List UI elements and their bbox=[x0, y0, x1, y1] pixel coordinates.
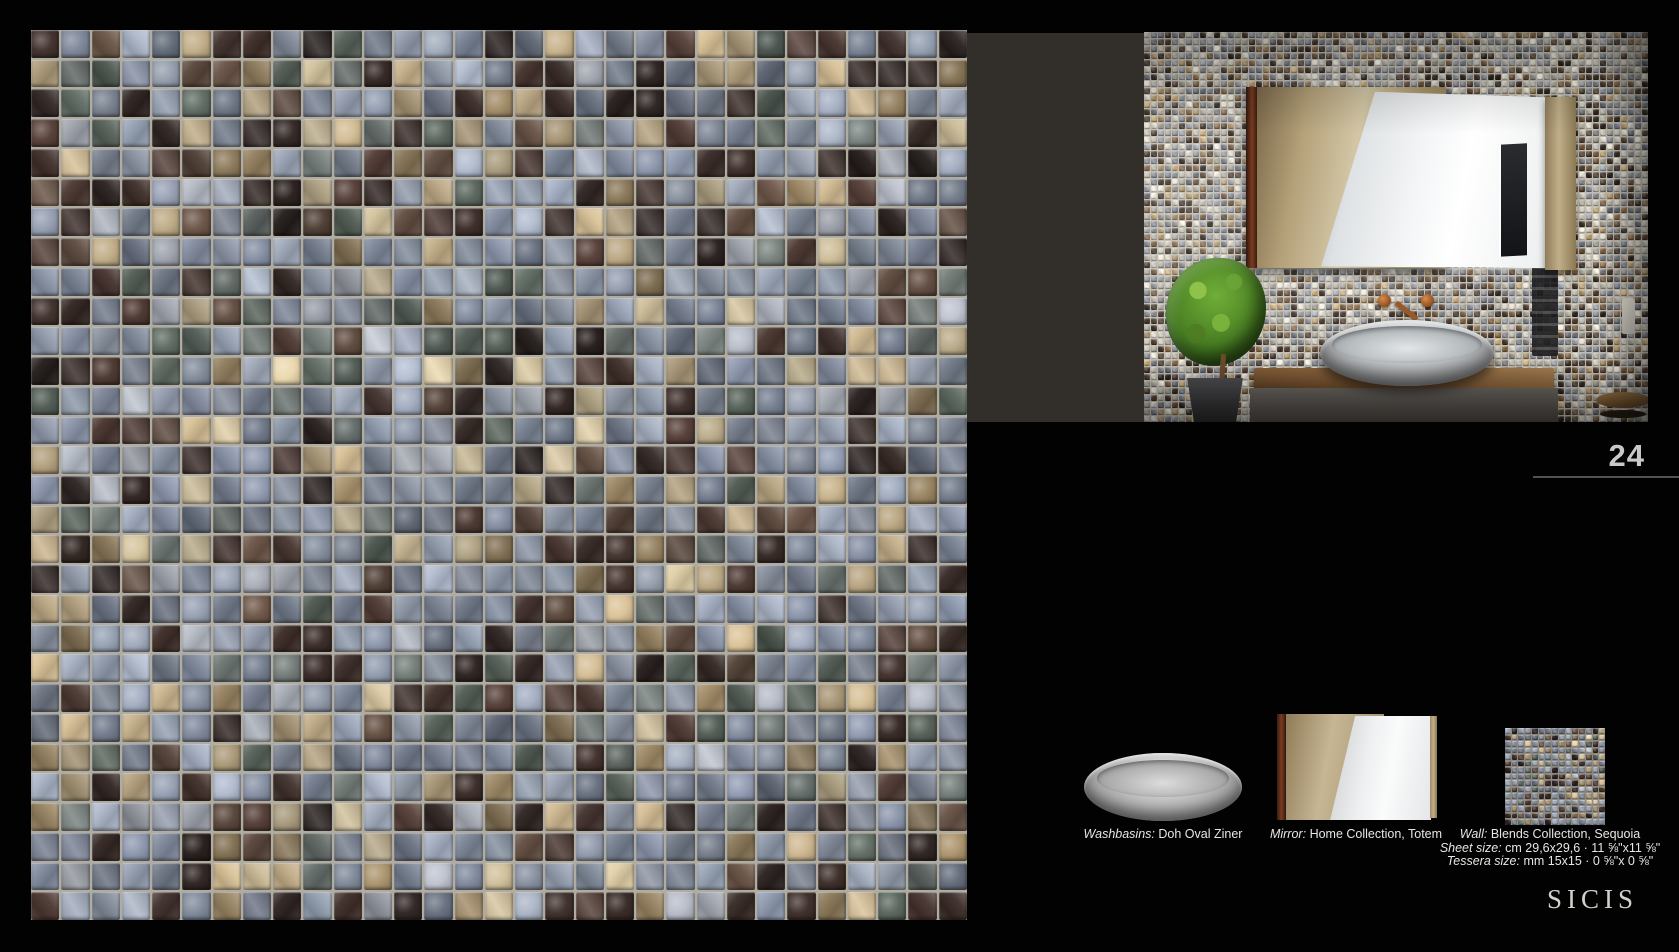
mosaic-tile bbox=[1467, 283, 1473, 289]
mosaic-tile bbox=[1347, 297, 1353, 303]
mosaic-tile bbox=[1586, 416, 1592, 422]
mosaic-tile bbox=[92, 654, 120, 682]
mosaic-tile bbox=[424, 654, 452, 682]
mosaic-tile bbox=[1600, 207, 1606, 213]
mosaic-tile bbox=[1361, 81, 1367, 87]
mosaic-tile bbox=[727, 60, 755, 88]
mosaic-tile bbox=[787, 654, 815, 682]
mosaic-tile bbox=[1207, 193, 1213, 199]
mosaic-tile bbox=[1389, 46, 1395, 52]
mosaic-tile bbox=[1572, 325, 1578, 331]
mosaic-tile bbox=[1579, 339, 1585, 345]
mosaic-tile bbox=[848, 654, 876, 682]
mosaic-tile bbox=[1474, 81, 1480, 87]
mosaic-tile bbox=[92, 863, 120, 891]
mosaic-tile bbox=[1270, 67, 1276, 73]
mosaic-tile bbox=[1298, 318, 1304, 324]
mosaic-tile bbox=[1425, 81, 1431, 87]
mosaic-tile bbox=[303, 803, 331, 831]
mosaic-tile bbox=[1453, 67, 1459, 73]
mosaic-tile bbox=[606, 863, 634, 891]
mosaic-tile bbox=[152, 149, 180, 177]
mosaic-tile bbox=[1228, 234, 1234, 240]
mosaic-tile bbox=[1249, 360, 1255, 366]
mosaic-tile bbox=[1263, 346, 1269, 352]
mosaic-tile bbox=[1256, 67, 1262, 73]
mosaic-tile bbox=[1158, 255, 1164, 261]
mosaic-tile bbox=[334, 803, 362, 831]
mosaic-tile bbox=[1586, 262, 1592, 268]
mosaic-tile bbox=[1172, 200, 1178, 206]
mosaic-tile bbox=[1579, 221, 1585, 227]
mosaic-tile bbox=[1207, 109, 1213, 115]
mosaic-tile bbox=[1404, 276, 1410, 282]
mosaic-tile bbox=[1523, 332, 1529, 338]
mosaic-tile bbox=[1600, 32, 1606, 38]
mosaic-tile bbox=[1172, 88, 1178, 94]
mosaic-tile bbox=[1214, 172, 1220, 178]
mosaic-tile bbox=[1537, 67, 1543, 73]
mosaic-tile bbox=[1186, 248, 1192, 254]
mosaic-tile bbox=[1621, 39, 1627, 45]
mosaic-tile bbox=[92, 506, 120, 534]
mosaic-tile bbox=[1179, 416, 1185, 422]
mosaic-tile bbox=[1607, 339, 1613, 345]
mosaic-tile bbox=[213, 565, 241, 593]
mosaic-tile bbox=[1635, 130, 1641, 136]
mosaic-tile bbox=[727, 119, 755, 147]
mosaic-tile bbox=[1263, 67, 1269, 73]
mosaic-tile bbox=[636, 565, 664, 593]
mosaic-tile bbox=[1495, 60, 1501, 66]
mosaic-tile bbox=[1151, 276, 1157, 282]
mosaic-tile bbox=[1186, 60, 1192, 66]
mosaic-tile bbox=[1432, 283, 1438, 289]
mosaic-tile bbox=[939, 863, 967, 891]
mosaic-tile bbox=[1179, 116, 1185, 122]
mosaic-tile bbox=[1263, 325, 1269, 331]
mosaic-tile bbox=[1319, 276, 1325, 282]
mosaic-tile bbox=[1495, 39, 1501, 45]
mosaic-tile bbox=[364, 535, 392, 563]
mosaic-tile bbox=[1256, 353, 1262, 359]
mosaic-tile bbox=[1326, 276, 1332, 282]
mosaic-tile bbox=[1382, 53, 1388, 59]
mosaic-tile bbox=[1586, 381, 1592, 387]
mosaic-tile bbox=[727, 892, 755, 920]
mosaic-tile bbox=[878, 654, 906, 682]
mosaic-tile bbox=[1144, 318, 1150, 324]
mosaic-tile bbox=[1235, 95, 1241, 101]
mosaic-tile bbox=[606, 89, 634, 117]
mosaic-tile bbox=[31, 773, 59, 801]
mosaic-tile bbox=[636, 30, 664, 58]
mosaic-tile bbox=[1235, 144, 1241, 150]
mosaic-tile bbox=[213, 506, 241, 534]
mosaic-tile bbox=[787, 684, 815, 712]
mosaic-tile bbox=[213, 714, 241, 742]
mosaic-tile bbox=[1333, 297, 1339, 303]
mosaic-tile bbox=[273, 208, 301, 236]
mosaic-tile bbox=[1193, 241, 1199, 247]
mosaic-tile bbox=[1628, 374, 1634, 380]
mosaic-tile bbox=[666, 744, 694, 772]
mosaic-tile bbox=[273, 833, 301, 861]
mosaic-tile bbox=[727, 833, 755, 861]
mosaic-tile bbox=[1207, 67, 1213, 73]
mosaic-tile bbox=[1389, 60, 1395, 66]
mosaic-tile bbox=[787, 863, 815, 891]
mosaic-tile bbox=[213, 417, 241, 445]
mosaic-tile bbox=[636, 119, 664, 147]
mosaic-tile bbox=[1305, 81, 1311, 87]
mosaic-tile bbox=[878, 506, 906, 534]
mosaic-tile bbox=[1165, 388, 1171, 394]
mosaic-tile bbox=[1200, 123, 1206, 129]
mosaic-tile bbox=[1614, 193, 1620, 199]
mosaic-tile bbox=[1179, 228, 1185, 234]
mosaic-tile bbox=[1411, 67, 1417, 73]
mosaic-tile bbox=[636, 387, 664, 415]
mosaic-tile bbox=[1593, 409, 1599, 415]
mosaic-tile bbox=[1642, 116, 1648, 122]
mosaic-tile bbox=[1600, 39, 1606, 45]
mosaic-tile bbox=[1144, 32, 1150, 38]
mosaic-tile bbox=[1565, 416, 1571, 422]
mosaic-tile bbox=[1277, 32, 1283, 38]
mosaic-tile bbox=[1214, 241, 1220, 247]
mosaic-tile bbox=[1614, 297, 1620, 303]
mosaic-tile bbox=[1249, 39, 1255, 45]
mosaic-tile bbox=[848, 714, 876, 742]
mosaic-tile bbox=[1551, 67, 1557, 73]
mosaic-tile bbox=[1165, 409, 1171, 415]
mosaic-tile bbox=[1558, 395, 1564, 401]
mosaic-tile bbox=[122, 208, 150, 236]
mosaic-tile bbox=[455, 89, 483, 117]
mosaic-tile bbox=[334, 149, 362, 177]
mosaic-tile bbox=[1382, 276, 1388, 282]
mosaic-tile bbox=[1263, 269, 1269, 275]
mosaic-tile bbox=[1579, 325, 1585, 331]
mosaic-tile bbox=[1158, 283, 1164, 289]
mosaic-tile bbox=[1277, 332, 1283, 338]
mosaic-tile bbox=[1235, 158, 1241, 164]
mosaic-tile bbox=[727, 208, 755, 236]
mosaic-tile bbox=[1600, 151, 1606, 157]
mosaic-tile bbox=[1291, 325, 1297, 331]
mosaic-tile bbox=[1158, 388, 1164, 394]
mosaic-tile bbox=[1439, 276, 1445, 282]
mosaic-tile bbox=[1614, 172, 1620, 178]
mosaic-tile bbox=[1172, 102, 1178, 108]
mosaic-tile bbox=[1614, 137, 1620, 143]
mosaic-tile bbox=[485, 298, 513, 326]
mosaic-tile bbox=[1165, 193, 1171, 199]
mosaic-tile bbox=[1600, 186, 1606, 192]
mosaic-tile bbox=[1270, 304, 1276, 310]
mosaic-tile bbox=[1312, 346, 1318, 352]
mosaic-tile bbox=[1389, 67, 1395, 73]
mosaic-tile bbox=[1228, 200, 1234, 206]
mosaic-tile bbox=[424, 357, 452, 385]
mosaic-tile bbox=[1207, 151, 1213, 157]
mosaic-tile bbox=[1558, 367, 1564, 373]
mosaic-tile bbox=[364, 149, 392, 177]
mosaic-tile bbox=[1523, 325, 1529, 331]
mosaic-tile bbox=[1347, 39, 1353, 45]
mosaic-tile bbox=[364, 60, 392, 88]
mosaic-tile bbox=[1151, 248, 1157, 254]
mosaic-tile bbox=[606, 357, 634, 385]
mosaic-tile bbox=[1319, 304, 1325, 310]
mosaic-tile bbox=[1228, 241, 1234, 247]
mosaic-tile bbox=[1151, 214, 1157, 220]
mosaic-tile bbox=[1179, 234, 1185, 240]
mosaic-tile bbox=[1614, 262, 1620, 268]
mosaic-tile bbox=[818, 446, 846, 474]
mosaic-tile bbox=[1179, 67, 1185, 73]
mosaic-tile bbox=[515, 595, 543, 623]
mosaic-tile bbox=[1284, 81, 1290, 87]
mosaic-tile bbox=[1277, 346, 1283, 352]
mosaic-tile bbox=[1375, 60, 1381, 66]
mosaic-tile bbox=[576, 208, 604, 236]
mosaic-tile bbox=[1474, 88, 1480, 94]
mosaic-tile bbox=[1235, 367, 1241, 373]
mosaic-tile bbox=[1235, 200, 1241, 206]
mosaic-tile bbox=[1151, 193, 1157, 199]
mosaic-tile bbox=[1586, 67, 1592, 73]
mosaic-tile bbox=[1319, 283, 1325, 289]
mosaic-tile bbox=[757, 476, 785, 504]
mosaic-tile bbox=[1326, 290, 1332, 296]
mosaic-tile bbox=[1151, 318, 1157, 324]
mosaic-tile bbox=[1565, 32, 1571, 38]
mosaic-tile bbox=[1221, 39, 1227, 45]
mosaic-tile bbox=[878, 357, 906, 385]
mosaic-tile bbox=[182, 357, 210, 385]
mosaic-tile bbox=[1481, 53, 1487, 59]
mosaic-tile bbox=[515, 773, 543, 801]
mosaic-tile bbox=[1221, 109, 1227, 115]
mosaic-tile bbox=[1586, 172, 1592, 178]
mosaic-tile bbox=[1242, 381, 1248, 387]
mosaic-tile bbox=[1200, 137, 1206, 143]
mosaic-tile bbox=[1586, 339, 1592, 345]
mosaic-tile bbox=[1158, 165, 1164, 171]
mosaic-tile bbox=[878, 833, 906, 861]
mosaic-tile bbox=[364, 773, 392, 801]
mosaic-tile bbox=[1354, 283, 1360, 289]
mosaic-tile bbox=[666, 417, 694, 445]
mosaic-tile bbox=[1165, 339, 1171, 345]
mosaic-tile bbox=[1558, 381, 1564, 387]
mosaic-tile bbox=[787, 803, 815, 831]
mosaic-tile bbox=[1628, 74, 1634, 80]
mosaic-tile bbox=[1235, 221, 1241, 227]
mosaic-tile bbox=[1361, 32, 1367, 38]
mosaic-tile bbox=[1200, 130, 1206, 136]
mosaic-tile bbox=[1144, 81, 1150, 87]
mosaic-tile bbox=[818, 89, 846, 117]
mosaic-tile bbox=[455, 625, 483, 653]
mosaic-tile bbox=[1158, 123, 1164, 129]
mosaic-tile bbox=[1621, 290, 1627, 296]
mosaic-tile bbox=[818, 744, 846, 772]
mosaic-tile bbox=[576, 298, 604, 326]
mosaic-tile bbox=[1172, 151, 1178, 157]
mosaic-tile bbox=[1502, 276, 1508, 282]
mosaic-tile bbox=[1453, 60, 1459, 66]
mosaic-tile bbox=[1305, 60, 1311, 66]
mosaic-tile bbox=[787, 238, 815, 266]
mosaic-tile bbox=[273, 89, 301, 117]
mosaic-tile bbox=[122, 506, 150, 534]
mosaic-tile bbox=[1242, 374, 1248, 380]
mosaic-tile bbox=[455, 476, 483, 504]
mosaic-tile bbox=[1586, 248, 1592, 254]
mosaic-tile bbox=[908, 863, 936, 891]
mosaic-tile bbox=[1607, 276, 1613, 282]
mosaic-tile bbox=[1516, 290, 1522, 296]
mosaic-tile bbox=[92, 327, 120, 355]
mosaic-tile bbox=[939, 744, 967, 772]
mosaic-tile bbox=[545, 357, 573, 385]
mosaic-tile bbox=[515, 357, 543, 385]
mosaic-tile bbox=[1593, 283, 1599, 289]
mosaic-tile bbox=[1425, 60, 1431, 66]
mosaic-tile bbox=[273, 803, 301, 831]
mosaic-tile bbox=[576, 149, 604, 177]
mosaic-tile bbox=[1432, 53, 1438, 59]
mosaic-tile bbox=[1509, 311, 1515, 317]
mosaic-tile bbox=[243, 565, 271, 593]
mosaic-tile bbox=[1635, 221, 1641, 227]
mosaic-tile bbox=[1151, 228, 1157, 234]
mosaic-tile bbox=[31, 417, 59, 445]
mosaic-tile bbox=[1347, 60, 1353, 66]
mosaic-tile bbox=[818, 654, 846, 682]
mosaic-tile bbox=[1200, 214, 1206, 220]
mosaic-tile bbox=[1565, 53, 1571, 59]
mosaic-tile bbox=[757, 446, 785, 474]
mosaic-tile bbox=[1467, 46, 1473, 52]
mosaic-tile bbox=[1312, 32, 1318, 38]
mosaic-tile bbox=[1600, 144, 1606, 150]
mosaic-tile bbox=[1291, 32, 1297, 38]
mosaic-tile bbox=[908, 654, 936, 682]
mosaic-tile bbox=[1151, 290, 1157, 296]
mosaic-tile bbox=[1263, 81, 1269, 87]
mosaic-tile bbox=[1635, 179, 1641, 185]
mosaic-tile bbox=[1558, 318, 1564, 324]
mosaic-tile bbox=[757, 565, 785, 593]
mosaic-tile bbox=[908, 565, 936, 593]
mosaic-tile bbox=[92, 446, 120, 474]
mosaic-tile bbox=[757, 60, 785, 88]
mosaic-tile bbox=[1586, 53, 1592, 59]
mosaic-tile bbox=[697, 417, 725, 445]
mosaic-tile bbox=[787, 119, 815, 147]
mosaic-tile bbox=[1354, 304, 1360, 310]
mosaic-tile bbox=[213, 892, 241, 920]
mosaic-tile bbox=[1235, 67, 1241, 73]
mosaic-tile bbox=[1488, 60, 1494, 66]
mosaic-tile bbox=[818, 565, 846, 593]
mosaic-tile bbox=[697, 595, 725, 623]
mosaic-tile bbox=[1249, 53, 1255, 59]
mosaic-tile bbox=[1593, 311, 1599, 317]
mosaic-tile bbox=[1340, 46, 1346, 52]
mosaic-tile bbox=[1453, 32, 1459, 38]
mosaic-tile bbox=[1158, 325, 1164, 331]
mosaic-tile bbox=[757, 773, 785, 801]
mosaic-tile bbox=[1291, 318, 1297, 324]
mosaic-tile bbox=[213, 446, 241, 474]
mosaic-tile bbox=[1586, 151, 1592, 157]
mosaic-tile bbox=[1347, 290, 1353, 296]
mosaic-tile bbox=[61, 892, 89, 920]
mosaic-tile bbox=[61, 803, 89, 831]
mosaic-tile bbox=[1530, 74, 1536, 80]
mosaic-tile bbox=[303, 60, 331, 88]
mosaic-tile bbox=[727, 565, 755, 593]
mosaic-tile bbox=[697, 446, 725, 474]
mosaic-tile bbox=[1200, 248, 1206, 254]
mosaic-tile bbox=[727, 654, 755, 682]
mosaic-tile bbox=[1165, 137, 1171, 143]
mosaic-tile bbox=[1263, 39, 1269, 45]
mosaic-tile bbox=[1586, 325, 1592, 331]
mosaic-tile bbox=[1186, 416, 1192, 422]
mosaic-tile bbox=[576, 60, 604, 88]
mosaic-tile bbox=[1319, 60, 1325, 66]
mosaic-tile bbox=[1158, 130, 1164, 136]
mosaic-tile bbox=[1207, 172, 1213, 178]
mosaic-tile bbox=[1284, 318, 1290, 324]
mosaic-tile bbox=[1368, 269, 1374, 275]
mosaic-tile bbox=[1326, 81, 1332, 87]
mosaic-tile bbox=[1368, 39, 1374, 45]
mosaic-tile bbox=[1593, 88, 1599, 94]
mosaic-tile bbox=[908, 149, 936, 177]
mosaic-tile bbox=[545, 833, 573, 861]
mosaic-tile bbox=[1460, 53, 1466, 59]
mosaic-tile bbox=[1284, 46, 1290, 52]
mosaic-tile bbox=[515, 417, 543, 445]
mosaic-tile bbox=[1495, 46, 1501, 52]
mosaic-tile bbox=[1635, 228, 1641, 234]
mosaic-tile bbox=[1270, 360, 1276, 366]
mosaic-tile bbox=[1165, 276, 1171, 282]
mosaic-tile bbox=[303, 387, 331, 415]
mosaic-tile bbox=[334, 714, 362, 742]
mosaic-tile bbox=[1179, 158, 1185, 164]
mosaic-tile bbox=[1144, 269, 1150, 275]
mosaic-tile bbox=[1642, 255, 1648, 261]
mosaic-tile bbox=[1628, 53, 1634, 59]
mosaic-tile bbox=[1165, 353, 1171, 359]
mosaic-tile bbox=[848, 565, 876, 593]
mosaic-tile bbox=[31, 179, 59, 207]
mosaic-tile bbox=[1144, 39, 1150, 45]
mosaic-tile bbox=[1593, 95, 1599, 101]
mosaic-tile bbox=[1586, 123, 1592, 129]
mosaic-tile bbox=[31, 327, 59, 355]
mosaic-tile bbox=[1186, 367, 1192, 373]
mosaic-tile bbox=[243, 238, 271, 266]
